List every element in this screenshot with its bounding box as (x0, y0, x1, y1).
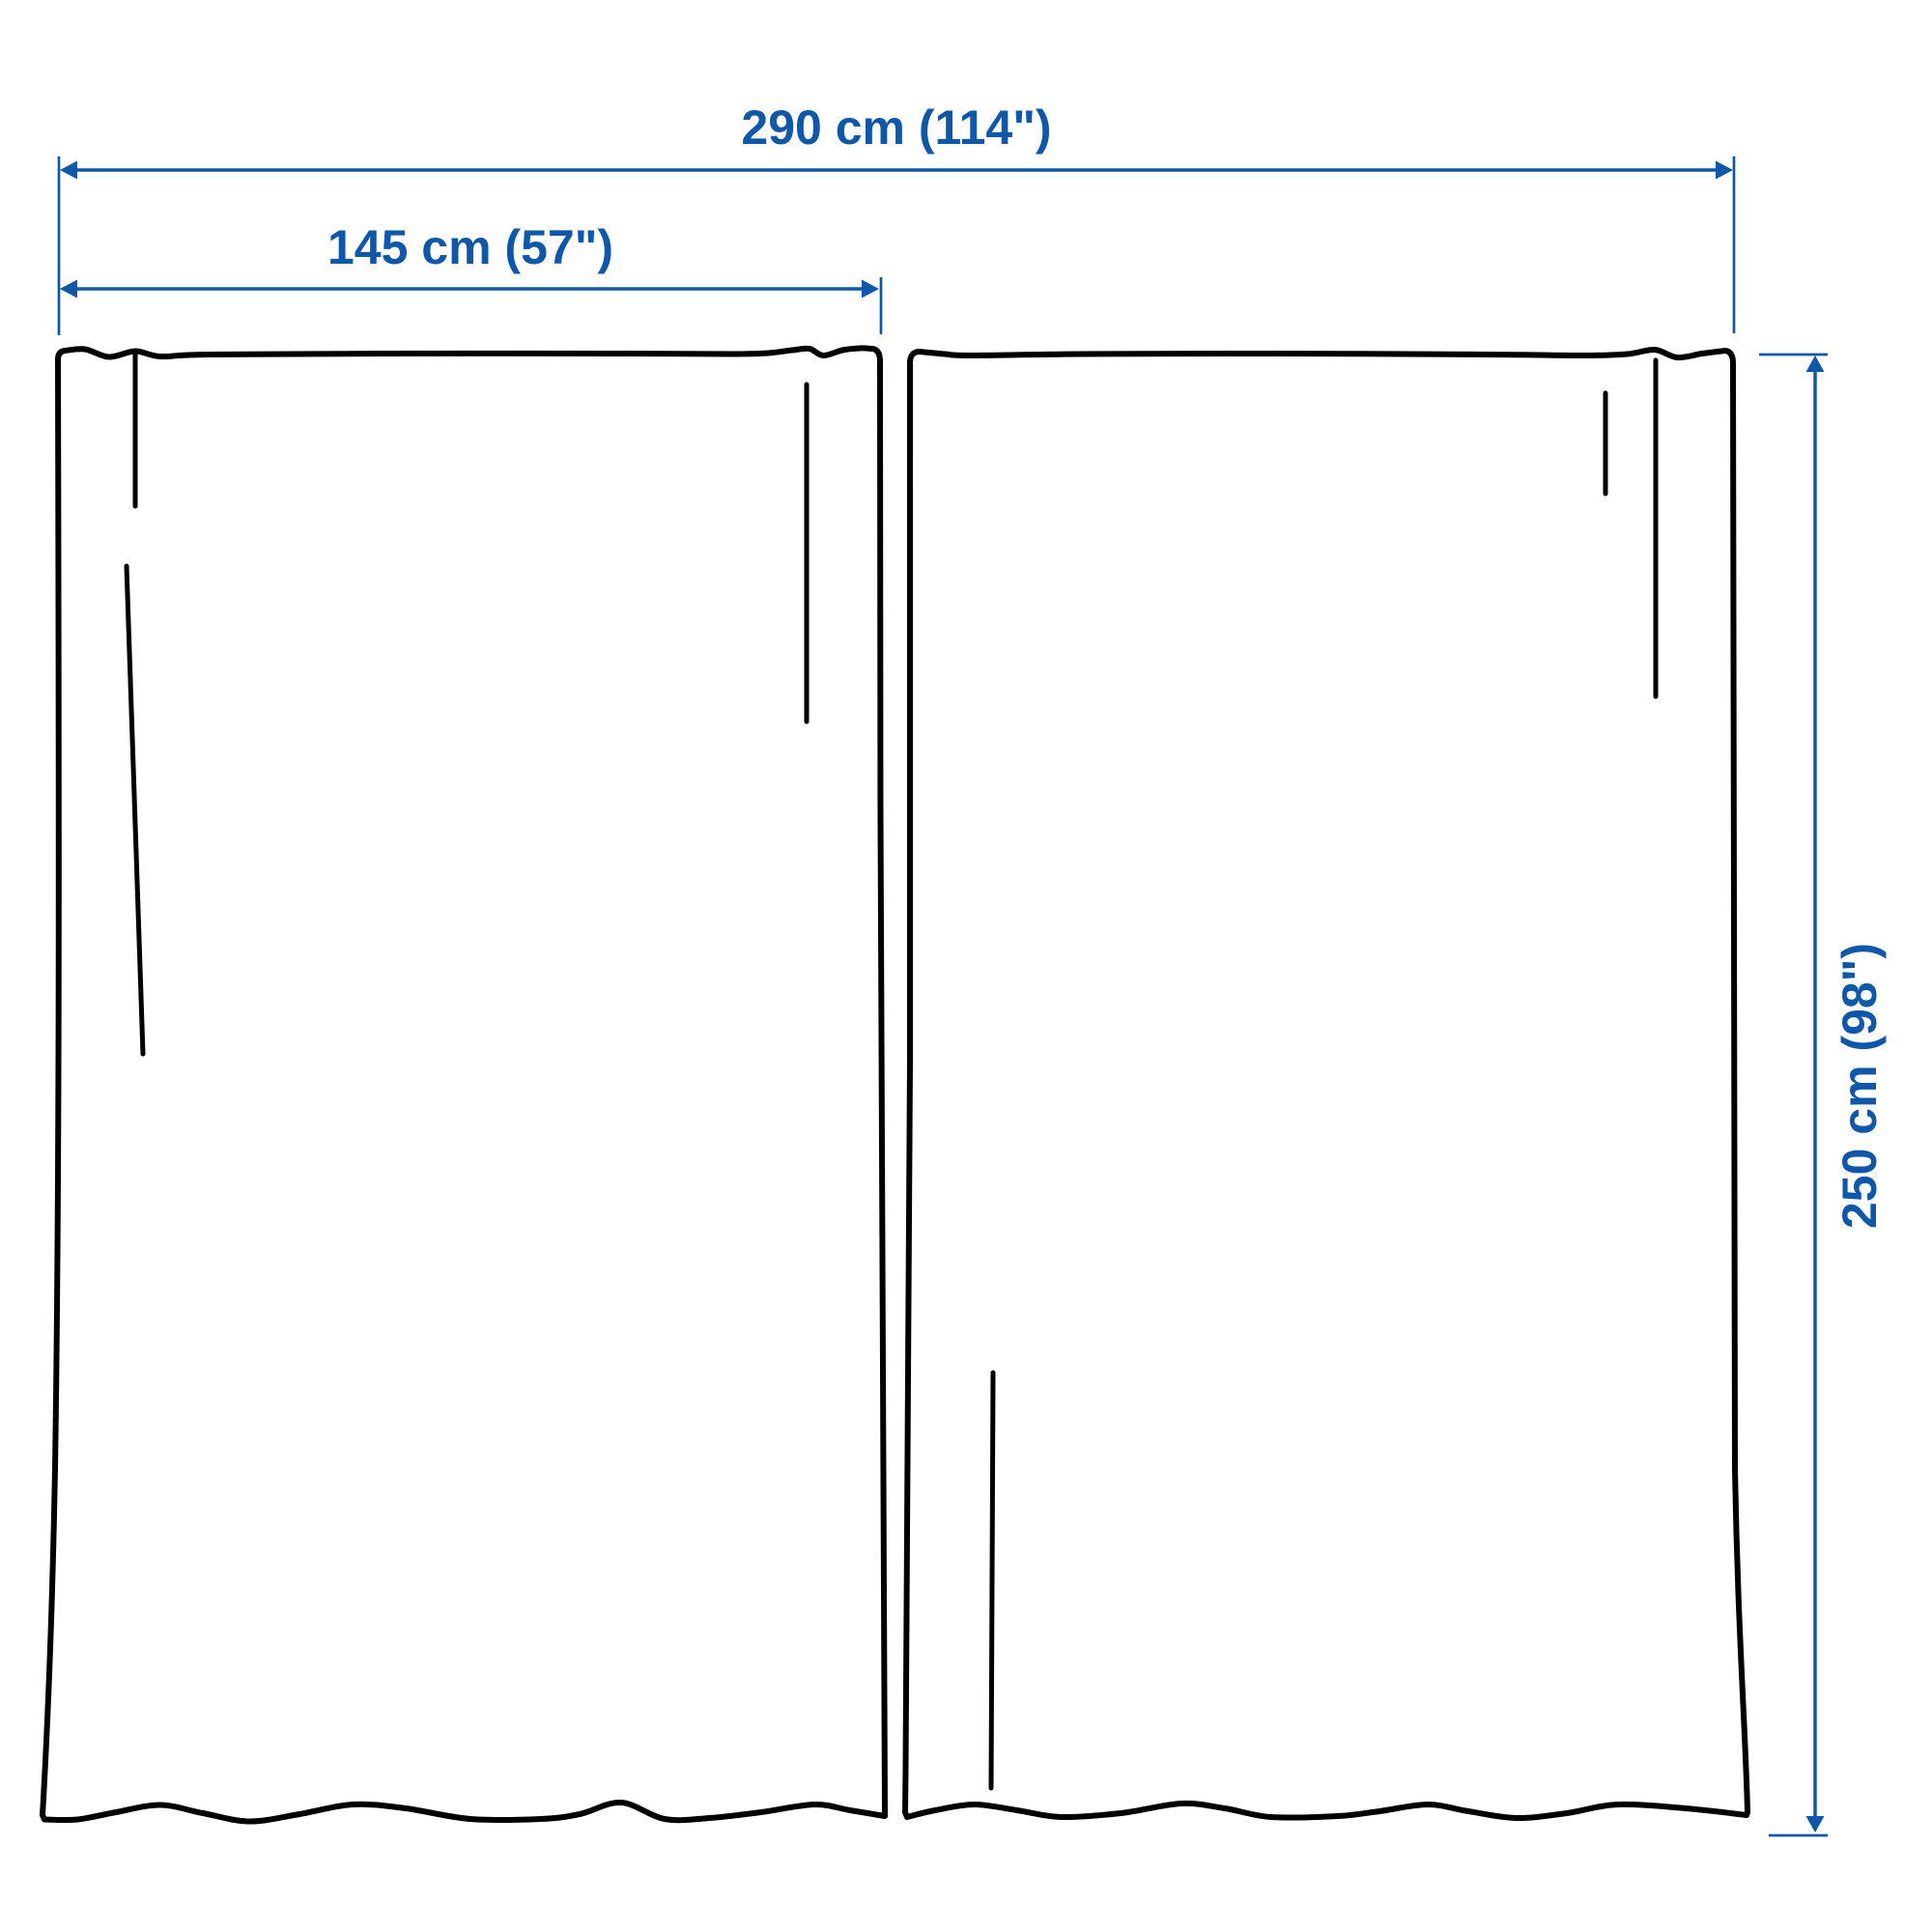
svg-text:145 cm (57"): 145 cm (57") (327, 220, 613, 274)
svg-text:250 cm (98"): 250 cm (98") (1833, 943, 1887, 1229)
svg-text:290 cm (114"): 290 cm (114") (741, 100, 1051, 155)
